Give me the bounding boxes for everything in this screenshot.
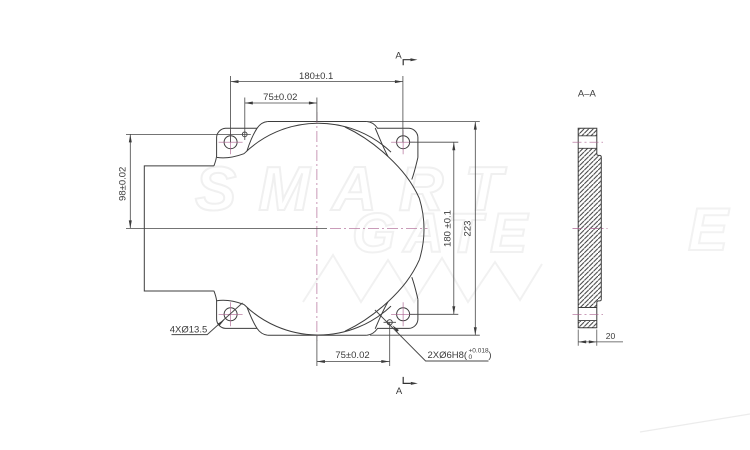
- svg-text:75±0.02: 75±0.02: [335, 350, 369, 361]
- svg-text:180 ±0.1: 180 ±0.1: [443, 210, 454, 247]
- svg-text:0: 0: [469, 354, 473, 361]
- svg-text:4XØ13.5: 4XØ13.5: [170, 325, 208, 336]
- svg-text:75±0.02: 75±0.02: [263, 92, 297, 103]
- svg-text:2XØ6H8(: 2XØ6H8(: [428, 350, 468, 361]
- svg-text:): ): [488, 350, 491, 361]
- svg-text:A: A: [396, 386, 403, 397]
- svg-text:E: E: [688, 196, 730, 263]
- svg-text:223: 223: [463, 221, 474, 237]
- svg-text:A–A: A–A: [578, 89, 597, 100]
- svg-text:98±0.02: 98±0.02: [118, 167, 129, 201]
- svg-text:20: 20: [606, 331, 616, 341]
- svg-text:A: A: [395, 51, 402, 62]
- svg-text:180±0.1: 180±0.1: [299, 71, 333, 82]
